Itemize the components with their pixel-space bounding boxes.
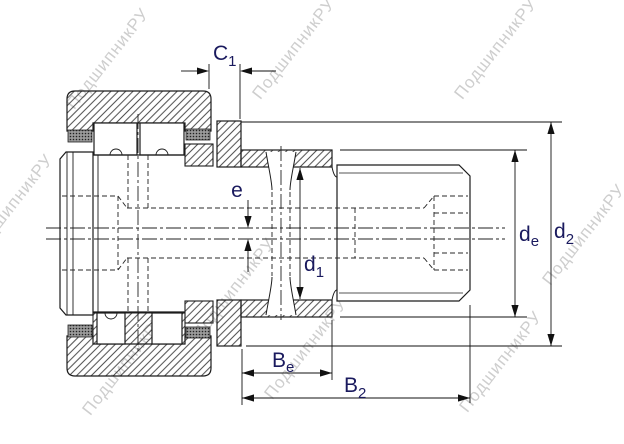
relief-groove-top <box>332 167 337 177</box>
seal-bottom-left <box>68 325 92 337</box>
watermark: ПодшипникРУ <box>0 150 57 258</box>
bearing-technical-drawing: ПодшипникРУ ПодшипникРУ ПодшипникРУ Подш… <box>0 0 624 444</box>
stud-flange <box>60 152 93 315</box>
seal-bottom-right <box>186 327 210 338</box>
side-washers <box>185 144 213 323</box>
watermark: ПодшипникРУ <box>455 307 545 415</box>
eccentric-collar <box>217 121 337 346</box>
seal-top-right <box>186 129 210 140</box>
collar-flange-top <box>217 121 241 167</box>
label-de: de <box>519 223 539 250</box>
stud <box>60 152 185 315</box>
collar-flange-bottom <box>217 300 241 346</box>
label-e: e <box>231 179 243 202</box>
watermark: ПодшипникРУ <box>450 0 540 103</box>
label-c1: C1 <box>213 42 237 70</box>
watermark: ПодшипникРУ <box>248 0 338 103</box>
bearing-drawing-canvas: ПодшипникРУ ПодшипникРУ ПодшипникРУ Подш… <box>0 0 624 444</box>
seal-top-left <box>68 130 92 142</box>
threaded-stud-end <box>337 165 470 301</box>
needle-rollers <box>93 123 185 344</box>
label-d1: d1 <box>304 253 324 281</box>
dimension-d1: d1 <box>296 168 324 299</box>
